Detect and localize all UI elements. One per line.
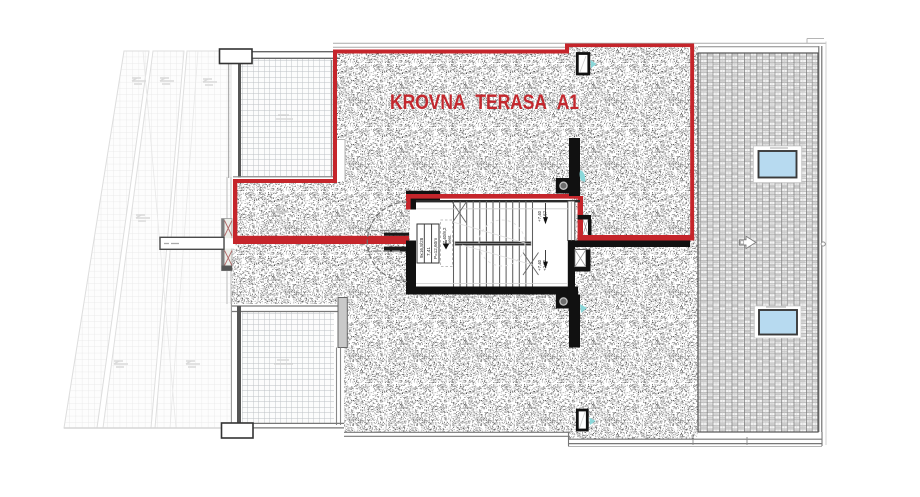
svg-text:7,41: 7,41: [426, 247, 431, 256]
svg-text:+7,40: +7,40: [537, 210, 542, 222]
svg-text:KROVNA TERASA A1: KROVNA TERASA A1: [390, 89, 579, 114]
svg-text:P=12,60m: P=12,60m: [433, 238, 438, 259]
svg-text:9x16,8/28: 9x16,8/28: [419, 237, 424, 258]
svg-text:+7,40: +7,40: [537, 259, 542, 271]
svg-text:vent.: vent.: [447, 234, 452, 244]
